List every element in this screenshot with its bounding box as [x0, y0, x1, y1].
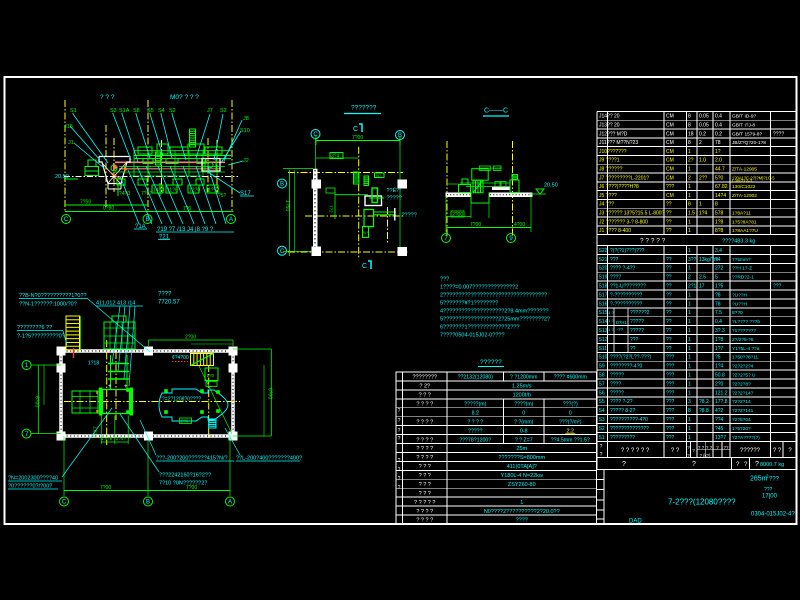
svg-text:1?18: 1?18	[88, 361, 99, 367]
svg-text:C: C	[64, 217, 69, 223]
svg-text:0?80: 0?80	[103, 206, 114, 212]
svg-text:130/C1022: 130/C1022	[732, 184, 756, 190]
svg-text:? ? ? ?: ? ? ? ?	[416, 419, 433, 425]
svg-text:7?5?: 7?5?	[141, 191, 152, 197]
svg-text:? ? ? ?: ? ? ? ?	[416, 455, 433, 461]
svg-text:3??: 3??	[688, 257, 697, 263]
svg-text:S20: S20	[599, 266, 608, 272]
svg-text:6?00: 6?00	[34, 396, 40, 407]
svg-text:???: ???	[666, 435, 675, 441]
svg-text:DAD: DAD	[629, 519, 642, 525]
svg-text:?2?A????(?): ?2?A????(?)	[732, 435, 760, 441]
svg-text:1: 1	[520, 500, 523, 506]
svg-text:?????: ?????	[402, 213, 417, 219]
svg-text:????(?2?L??-???): ????(?2?L??-???)	[610, 355, 651, 361]
svg-text:??: ??	[666, 275, 672, 281]
svg-text:?-??????????: ?-??????????	[610, 292, 642, 298]
svg-text:J14?? 20: J14?? 20	[599, 114, 620, 120]
svg-text:?????: ?????	[468, 428, 483, 434]
svg-text:J11??? M??N?23: J11??? M??N?23	[599, 140, 638, 146]
svg-text:S5: S5	[599, 399, 605, 405]
svg-text:?U??H: ?U??H	[732, 301, 747, 307]
svg-text:578: 578	[715, 211, 724, 217]
svg-text:1?5: 1?5	[715, 284, 724, 290]
svg-text:??: ??	[666, 319, 672, 325]
svg-text:1: 1	[688, 426, 691, 432]
svg-text:2?4?: 2?4?	[116, 436, 127, 441]
svg-text:S3: S3	[599, 417, 605, 423]
svg-text:?4?0: ?4?0	[119, 191, 130, 197]
svg-text:1: 1	[688, 319, 691, 325]
svg-text:S1: S1	[599, 435, 605, 441]
svg-text:? ? ?: ? ? ?	[419, 482, 431, 488]
svg-text:J1 ???? 8-400: J1 ???? 8-400	[599, 228, 631, 234]
svg-text:0.05: 0.05	[699, 123, 709, 129]
svg-text:44.7: 44.7	[715, 167, 725, 173]
svg-text:??: ??	[666, 211, 672, 217]
svg-text:1: 1	[688, 248, 691, 254]
svg-text:0: 0	[522, 410, 525, 416]
svg-text:1: 1	[688, 219, 691, 225]
svg-text:S14: S14	[599, 319, 608, 325]
svg-text:Z/TA-12905: Z/TA-12905	[732, 167, 757, 173]
svg-text:S13: S13	[599, 328, 608, 334]
svg-text:???: ???	[666, 390, 675, 396]
svg-text:2: 2	[688, 175, 691, 181]
svg-text:3.4: 3.4	[715, 248, 722, 254]
svg-text:?: ?	[398, 458, 401, 464]
svg-text:8: 8	[688, 202, 691, 208]
svg-text:A: A	[229, 217, 233, 223]
svg-text:?: ?	[398, 408, 401, 414]
svg-text:??: ??	[666, 219, 672, 225]
svg-text:???: ???	[764, 487, 773, 493]
svg-text:S6: S6	[599, 390, 605, 396]
svg-text:??????2: ??????2	[630, 310, 650, 316]
svg-text:1?8A?11: 1?8A?11	[732, 211, 751, 217]
svg-text:????(m): ????(m)	[514, 401, 534, 407]
svg-text:? ? ?: ? ? ?	[419, 473, 431, 479]
svg-text:CM: CM	[666, 123, 674, 129]
svg-text:?5?: ?5?	[218, 193, 227, 199]
svg-text:? ? ? ?: ? ? ? ?	[416, 446, 433, 452]
svg-text:3: 3	[688, 399, 691, 405]
svg-text:17: 17	[699, 284, 705, 290]
svg-text:C: C	[280, 249, 285, 255]
svg-text:5??????????????????2?25mm?????: 5??????????????????2?25mm????????2?	[440, 317, 550, 323]
svg-text:1: 1	[688, 228, 691, 234]
svg-text:1: 1	[688, 266, 691, 272]
svg-text:?: ?	[398, 418, 401, 424]
svg-text:?: ?	[398, 436, 401, 442]
svg-text:J2: J2	[243, 158, 249, 164]
svg-text:?2?5?04: ?2?5?04	[732, 417, 751, 423]
svg-text:S21: S21	[599, 257, 608, 263]
svg-text:-??: -??	[617, 327, 624, 332]
svg-text:14?4: 14?4	[715, 193, 726, 199]
svg-text:? (k?): ? (k?)	[700, 453, 711, 458]
svg-text:??2132(12080): ??2132(12080)	[458, 375, 493, 381]
svg-text:?2?2?14?: ?2?2?14?	[732, 390, 754, 396]
svg-text:?(?(?1)???)???: ?(?(?1)???)???	[610, 248, 645, 254]
svg-text:????: ????	[610, 381, 621, 387]
svg-text:?: ?	[398, 485, 401, 491]
svg-text:? ?: ? ?	[706, 445, 713, 450]
svg-text:A: A	[228, 500, 232, 506]
svg-text:???: ???	[630, 337, 639, 343]
svg-text:???????S=800mm: ???????S=800mm	[498, 455, 545, 461]
svg-text:S10: S10	[240, 128, 250, 134]
svg-text:B: B	[145, 217, 149, 223]
svg-text:5?0: 5?0	[715, 175, 724, 181]
svg-text:0.2: 0.2	[699, 131, 706, 137]
svg-text:2?00: 2?00	[185, 335, 196, 341]
svg-text:? ? ?: ? ? ?	[419, 464, 431, 470]
svg-text:???? ¢600mm: ???? ¢600mm	[554, 375, 587, 381]
svg-text:???(?/m²): ???(?/m²)	[559, 419, 582, 425]
svg-text:1: 1	[688, 184, 691, 190]
svg-text:N?: N?	[363, 230, 369, 235]
svg-text:8000.7 kg: 8000.7 kg	[760, 462, 784, 468]
svg-text:S1A: S1A	[119, 108, 130, 114]
svg-text:????: ????	[516, 518, 528, 524]
svg-text:8: 8	[688, 114, 691, 120]
svg-text:1 ?: 1 ?	[608, 310, 614, 315]
svg-text:S16: S16	[599, 301, 608, 307]
svg-text:??: ??	[666, 328, 672, 334]
svg-text:2?: 2?	[688, 158, 694, 164]
svg-text:S4: S4	[599, 408, 605, 414]
svg-text:?8: ?8	[715, 292, 721, 298]
svg-text:?????: ?????	[387, 196, 402, 202]
svg-text:??: ??	[666, 202, 672, 208]
svg-text:J1: J1	[68, 140, 74, 146]
svg-text:2.5: 2.5	[699, 275, 706, 281]
svg-text:411(0TA[A]?: 411(0TA[A]?	[507, 464, 537, 470]
svg-text:20,50: 20,50	[544, 183, 558, 189]
svg-text:Z/TA-12902: Z/TA-12902	[732, 193, 757, 199]
svg-text:???: ???	[610, 257, 619, 263]
svg-text:272: 272	[715, 266, 724, 272]
svg-text:??H 1?-Z: ??H 1?-Z	[732, 266, 752, 272]
svg-text:???: ???	[666, 417, 675, 423]
svg-text:N?: N?	[376, 173, 382, 178]
svg-text:1?50??8?1L: 1?50??8?1L	[732, 355, 759, 361]
svg-text:????: ????	[610, 275, 621, 281]
svg-text:1: 1	[688, 310, 691, 316]
svg-text:7?50: 7?50	[80, 200, 91, 206]
svg-text:? ?(mm): ? ?(mm)	[514, 419, 534, 425]
svg-text:1: 1	[688, 149, 691, 155]
svg-text:67.82: 67.82	[715, 184, 728, 190]
svg-text:8: 8	[715, 202, 718, 208]
svg-text:CM: CM	[666, 131, 674, 137]
svg-text:1?5?20?: 1?5?20?	[732, 426, 751, 432]
svg-text:CM: CM	[666, 167, 674, 173]
svg-text:???: ???	[666, 355, 675, 361]
svg-text:1: 1	[688, 301, 691, 307]
svg-text:8.2: 8.2	[472, 410, 479, 416]
svg-text:3?4: 3?4	[331, 154, 340, 160]
svg-text:? 2?: ? 2?	[419, 384, 430, 390]
svg-text:0.4: 0.4	[715, 319, 722, 325]
svg-text:?????: ?????	[630, 328, 644, 334]
svg-text:??: ??	[666, 337, 672, 343]
svg-text:CM: CM	[666, 158, 674, 164]
svg-text:?-??????????: ?-??????????	[610, 301, 642, 307]
svg-text:7-2???(12080????: 7-2???(12080????	[668, 498, 736, 507]
svg-text:L?N?12-?: L?N?12-?	[732, 179, 753, 184]
svg-text:1: 1	[688, 364, 691, 370]
svg-text:??: ??	[666, 292, 672, 298]
svg-text:J9 ????1: J9 ????1	[599, 158, 620, 164]
svg-text:50.8: 50.8	[715, 373, 725, 379]
svg-text:???? ?-4??: ???? ?-4??	[610, 266, 636, 272]
svg-text:17?.8: 17?.8	[715, 399, 728, 405]
svg-text:S15: S15	[599, 310, 608, 316]
svg-text:2?00: 2?00	[452, 212, 463, 218]
svg-text:CM: CM	[666, 114, 674, 120]
svg-text:??4: ??4	[715, 417, 724, 423]
svg-text:1 ?: 1 ?	[608, 318, 614, 323]
svg-text:78: 78	[715, 140, 721, 146]
svg-text:??N-1??????:1000/?0?: ??N-1??????:1000/?0?	[19, 302, 77, 308]
svg-text:GB/T 1579-8?: GB/T 1579-8?	[732, 131, 762, 137]
svg-text:1.0: 1.0	[699, 158, 706, 164]
svg-text:S17: S17	[599, 292, 608, 298]
svg-text:???? ?-2?: ???? ?-2?	[610, 399, 633, 405]
svg-text:1.4?5: 1.4?5	[101, 436, 113, 441]
svg-text:1: 1	[688, 355, 691, 361]
svg-text:1?0: 1?0	[207, 373, 215, 378]
svg-text:?: ?	[398, 476, 401, 482]
svg-text:???????: ???????	[351, 105, 377, 112]
svg-text:?: ?	[692, 461, 696, 468]
svg-text:J7: J7	[207, 108, 213, 114]
svg-text:8: 8	[688, 408, 691, 414]
svg-text:2: 2	[699, 140, 702, 146]
svg-text:4?00: 4?00	[514, 222, 525, 228]
svg-text:S19: S19	[599, 275, 608, 281]
svg-text:ZSY260-80: ZSY260-80	[508, 482, 536, 488]
svg-text:2??: 2??	[699, 175, 708, 181]
svg-text:?2?2?8?: ?2?2?8?	[732, 381, 751, 387]
svg-text:78: 78	[715, 301, 721, 307]
svg-text:? ? ? ? ?: ? ? ? ? ?	[640, 238, 666, 245]
svg-text:2: 2	[688, 275, 691, 281]
svg-text:?8.8: ?8.8	[699, 408, 709, 414]
svg-text:?U??H: ?U??H	[732, 292, 747, 298]
svg-text:0: 0	[569, 410, 572, 416]
svg-text:??????????-4?0: ??????????-4?0	[610, 417, 648, 423]
svg-text:? ?: ? ?	[671, 448, 680, 454]
svg-text:GB/T ID-9?: GB/T ID-9?	[732, 114, 757, 120]
svg-text:?4: ?4	[715, 257, 721, 263]
svg-text:????? 8-2?: ????? 8-2?	[610, 408, 636, 414]
svg-text:CM: CM	[666, 175, 674, 181]
svg-text:??: ??	[630, 346, 636, 352]
svg-text:C: C	[353, 126, 358, 133]
svg-text:D?H1: D?H1	[616, 320, 627, 325]
svg-text:7?5mm?: 7?5mm?	[732, 257, 751, 263]
svg-text:??: ??	[666, 257, 672, 263]
svg-text:J8 ??????: J8 ??????	[599, 167, 623, 173]
svg-text:?: ?	[600, 444, 603, 450]
svg-text:12?0: 12?0	[189, 188, 200, 194]
svg-text:?2?2?141: ?2?2?141	[732, 408, 754, 414]
svg-text:1?5?8A?81: 1?5?8A?81	[732, 219, 757, 225]
svg-text:0.4: 0.4	[715, 123, 722, 129]
svg-text:1: 1	[688, 417, 691, 423]
svg-text:??: ??	[666, 266, 672, 272]
svg-text:4????????????????????2?8.4mm??: 4????????????????????2?8.4mm???????	[440, 309, 549, 315]
svg-text:M0? ? ? ?: M0? ? ? ?	[170, 94, 199, 101]
svg-text:8: 8	[688, 140, 691, 146]
svg-text:1: 1	[688, 373, 691, 379]
svg-text:3?.3: 3?.3	[715, 328, 725, 334]
svg-text:1?8AA1?7U: 1?8AA1?7U	[732, 228, 758, 234]
svg-text:? ? ?: ? ? ?	[100, 94, 115, 101]
svg-text:?????(m): ?????(m)	[464, 401, 486, 407]
svg-text:?1???????: ?1???????	[732, 328, 756, 334]
svg-text:?=2?1208?0????: ?=2?1208?0????	[162, 397, 201, 403]
svg-text:????: ????	[773, 131, 784, 137]
svg-text:1?50: 1?50	[284, 200, 290, 211]
svg-text:?L???? ???b: ?L???? ???b	[732, 319, 760, 325]
svg-text:2?????????????????????????????: 2??????????????????????????????????	[440, 293, 547, 299]
svg-text:C: C	[362, 263, 367, 270]
svg-text:??: ??	[666, 228, 672, 234]
svg-text:J12??? M?D: J12??? M?D	[599, 131, 628, 137]
svg-text:7?2: 7?2	[329, 205, 334, 213]
svg-text:? ?: ? ?	[773, 448, 782, 454]
svg-text:8??0: 8??0	[732, 310, 743, 316]
svg-text:1 ?: 1 ?	[608, 327, 614, 332]
svg-text:17|00: 17|00	[762, 494, 778, 500]
svg-text:C——C: C——C	[484, 108, 508, 115]
svg-text:J15: J15	[64, 124, 73, 130]
svg-text:B: B	[280, 182, 284, 188]
svg-text:0.2: 0.2	[715, 131, 722, 137]
svg-text:???(?): ???(?)	[563, 401, 578, 407]
svg-text:S7: S7	[599, 381, 605, 387]
svg-text:8: 8	[688, 123, 691, 129]
svg-text:5: 5	[715, 275, 718, 281]
svg-text:????: ????	[158, 292, 172, 298]
svg-text:J2 ??????? 3-? 8-800: J2 ??????? 3-? 8-800	[599, 219, 648, 225]
svg-text:???: ???	[666, 426, 675, 432]
svg-text:4?2: 4?2	[715, 408, 724, 414]
svg-text:? ? Z=7: ? ? Z=7	[515, 437, 533, 443]
svg-text:1: 1	[699, 202, 702, 208]
svg-text:1.5: 1.5	[688, 211, 695, 217]
svg-text:S8: S8	[599, 373, 605, 379]
svg-text:J6 ????)????H?8: J6 ????)????H?8	[599, 184, 639, 190]
svg-text:1: 1	[688, 435, 691, 441]
svg-text:?: ?	[755, 461, 759, 468]
svg-text:2?1: 2?1	[688, 284, 697, 290]
svg-text:?????: ?????	[610, 373, 624, 379]
svg-text:????????-4?0: ????????-4?0	[610, 364, 642, 370]
svg-text:2?/2?5-?5: 2?/2?5-?5	[732, 337, 754, 343]
svg-text:1?7: 1?7	[715, 346, 724, 352]
svg-text:1?8: 1?8	[715, 337, 724, 343]
svg-text:? ? ?: ? ? ?	[419, 393, 431, 399]
svg-text:7?00: 7?00	[352, 135, 363, 141]
svg-text:???: ???	[769, 477, 780, 483]
svg-text:1.25m/s: 1.25m/s	[512, 384, 532, 390]
svg-text:7?00: 7?00	[100, 485, 111, 491]
svg-text:0.4: 0.4	[715, 114, 722, 120]
svg-text:GB/T I?J-8: GB/T I?J-8	[732, 123, 755, 129]
svg-text:1: 1	[688, 390, 691, 396]
svg-text:1: 1	[688, 381, 691, 387]
svg-text:121.2: 121.2	[715, 390, 728, 396]
svg-text:7720.57: 7720.57	[158, 300, 180, 306]
svg-text:CM: CM	[666, 149, 674, 155]
svg-text:0304-015J02-4?: 0304-015J02-4?	[751, 512, 795, 518]
svg-text:?: ?	[622, 461, 626, 468]
svg-text:?5: ?5	[715, 355, 721, 361]
svg-text:1: 1	[688, 292, 691, 298]
svg-text:7?00: 7?00	[470, 222, 481, 228]
svg-text:?????: ?????	[610, 390, 624, 396]
svg-text:???: ???	[666, 408, 675, 414]
svg-text:7?10 ?0N??????2?: 7?10 ?0N??????2?	[159, 481, 207, 487]
svg-text:???: ???	[666, 364, 675, 370]
svg-text:??: ??	[666, 310, 672, 316]
svg-text:???: ???	[440, 277, 449, 283]
svg-text:7.5: 7.5	[715, 310, 722, 316]
svg-text:?????????: ?????????	[610, 435, 635, 441]
svg-text:? ?: ? ?	[698, 445, 705, 450]
svg-text:0.05: 0.05	[699, 114, 709, 120]
svg-text:???: ???	[773, 284, 782, 290]
svg-text:S9: S9	[599, 364, 605, 370]
svg-text:14?0: 14?0	[153, 188, 164, 194]
svg-text:?????: ?????	[630, 319, 644, 325]
svg-text:??????: ??????	[740, 448, 761, 454]
svg-text:N0????2??????????2?20.0??: N0????2??????????2?20.0??	[484, 509, 560, 515]
svg-text:S2: S2	[220, 108, 227, 114]
svg-text:?8.2: ?8.2	[699, 399, 709, 405]
svg-text:CM: CM	[666, 193, 674, 199]
svg-text:13?7: 13?7	[715, 435, 726, 441]
svg-text:J7 ?????????L-2201?: J7 ?????????L-2201?	[599, 175, 649, 181]
svg-text:Y1?5L-4 ??a: Y1?5L-4 ??a	[732, 346, 760, 352]
svg-text:0-8: 0-8	[520, 428, 528, 434]
svg-text:1200t/h: 1200t/h	[513, 393, 531, 399]
svg-text:????483.3 kg: ????483.3 kg	[722, 239, 755, 245]
svg-text:S11: S11	[599, 346, 608, 352]
svg-text:6?00: 6?00	[267, 388, 273, 399]
svg-text:J3 ?????? 13?5?15.5 L-800?: J3 ?????? 13?5?15.5 L-800?	[599, 211, 665, 217]
svg-text:S2: S2	[599, 426, 605, 432]
svg-text:J8: J8	[243, 116, 249, 122]
svg-text:??É?!: ??É?!	[387, 187, 402, 194]
svg-text:? ? ? ?: ? ? ? ?	[416, 401, 433, 407]
svg-text:1: 1	[688, 167, 691, 173]
svg-text:CM: CM	[666, 140, 674, 146]
svg-text:? ? ? ? ?: ? ? ? ? ?	[414, 500, 435, 506]
svg-text:JB/Z?Q?20-1?8: JB/Z?Q?20-1?8	[732, 140, 766, 146]
svg-text:???78?1200?: ???78?1200?	[459, 437, 491, 443]
svg-text:??1-U????????: ??1-U????????	[610, 284, 646, 290]
svg-text:1????=0.007??????????????2: 1????=0.007??????????????2	[440, 285, 518, 291]
svg-text:? ? ? ?: ? ? ? ?	[416, 437, 433, 443]
svg-text:? ? ?: ? ? ?	[419, 491, 431, 497]
svg-text:???2242160?16?2??: ???2242160?16?2??	[159, 473, 211, 479]
